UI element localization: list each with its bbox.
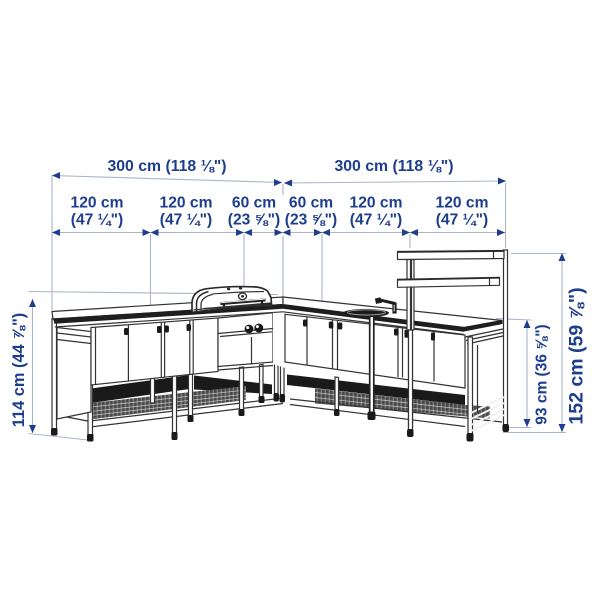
svg-text:(47 ¼"): (47 ¼") <box>160 212 212 229</box>
svg-text:120 cm: 120 cm <box>71 195 124 212</box>
svg-text:120 cm: 120 cm <box>436 195 489 212</box>
svg-text:300 cm (118 ⅛"): 300 cm (118 ⅛") <box>334 158 453 175</box>
svg-text:93 cm (36 ⅝"): 93 cm (36 ⅝") <box>534 324 551 424</box>
svg-text:(23 ⅝"): (23 ⅝") <box>228 212 280 229</box>
svg-text:(47 ¼"): (47 ¼") <box>71 212 123 229</box>
svg-text:(47 ¼"): (47 ¼") <box>436 212 488 229</box>
svg-text:(47 ¼"): (47 ¼") <box>350 212 402 229</box>
svg-text:114 cm (44 ⅞"): 114 cm (44 ⅞") <box>10 313 28 427</box>
svg-text:300 cm (118 ⅛"): 300 cm (118 ⅛") <box>107 158 226 175</box>
svg-text:60 cm: 60 cm <box>232 195 276 212</box>
svg-text:152 cm (59 ⅞"): 152 cm (59 ⅞") <box>566 287 588 424</box>
svg-text:120 cm: 120 cm <box>350 195 403 212</box>
svg-text:(23 ⅝"): (23 ⅝") <box>285 212 337 229</box>
svg-text:60 cm: 60 cm <box>289 195 333 212</box>
svg-text:120 cm: 120 cm <box>160 195 213 212</box>
